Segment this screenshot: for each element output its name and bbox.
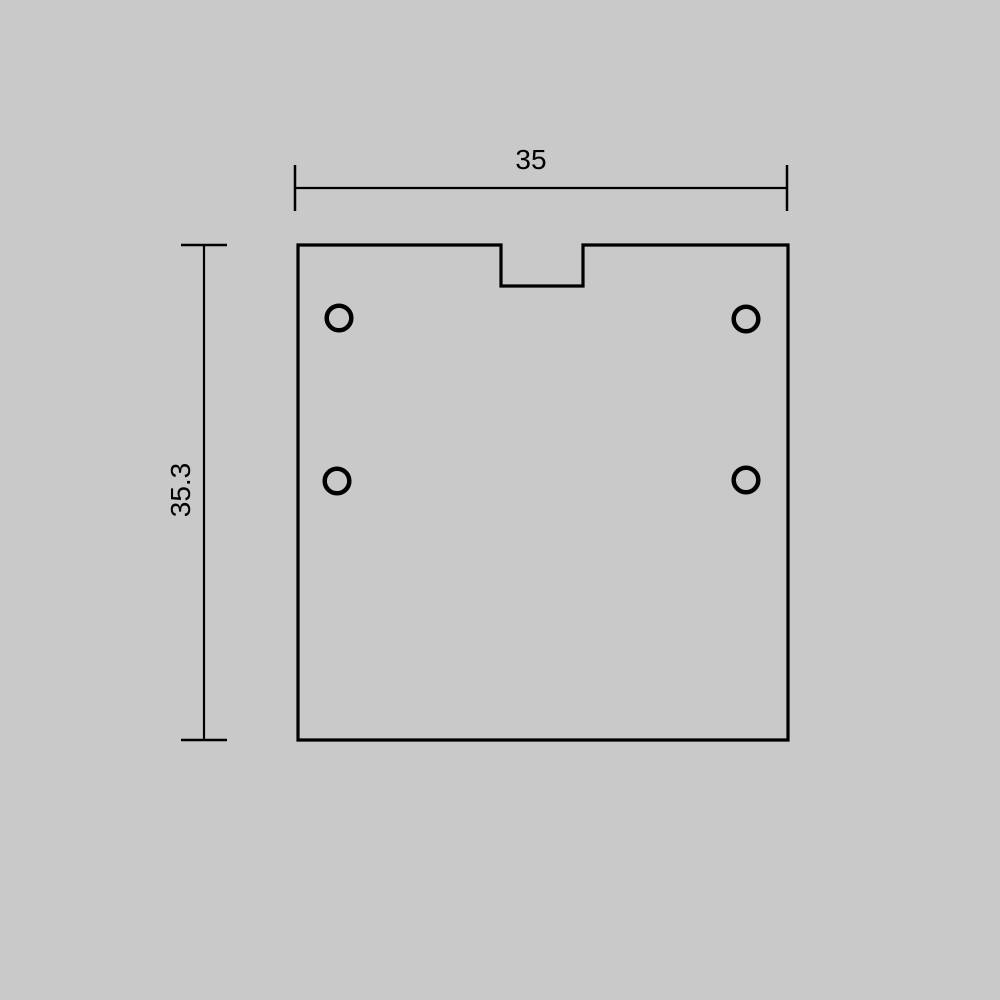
dimension-annotations: 3535.3 [165, 144, 787, 740]
dimension-label-height: 35.3 [165, 463, 196, 518]
drawing-stage: 3535.3 [0, 0, 1000, 1000]
part-outline [298, 245, 788, 740]
hole-circle-1 [327, 306, 352, 331]
dimension-label-width: 35 [515, 144, 546, 175]
hole-circle-4 [734, 468, 759, 493]
dimension-width: 35 [295, 144, 787, 211]
hole-circle-2 [734, 307, 759, 332]
part-view [298, 245, 788, 740]
technical-drawing-svg: 3535.3 [0, 0, 1000, 1000]
hole-circle-3 [325, 469, 350, 494]
dimension-height: 35.3 [165, 245, 227, 740]
